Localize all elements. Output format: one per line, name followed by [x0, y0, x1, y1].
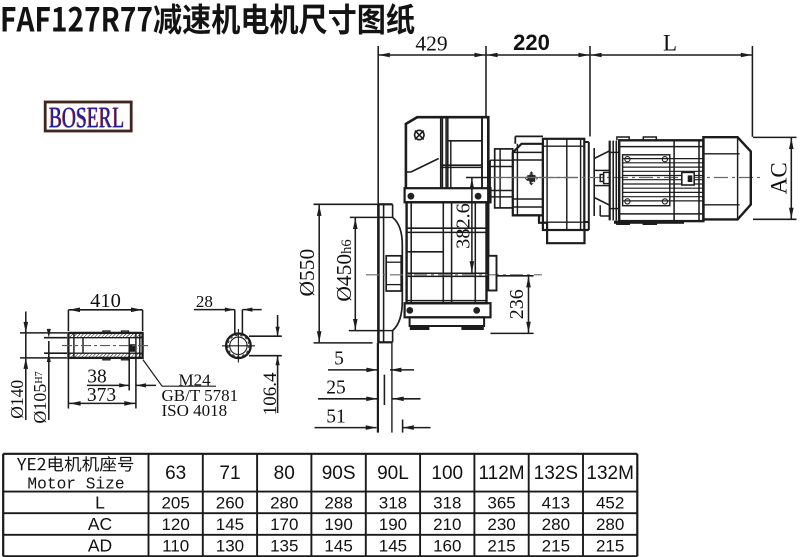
svg-text:110: 110	[162, 537, 189, 556]
svg-text:71: 71	[219, 463, 240, 484]
svg-text:AC: AC	[767, 162, 792, 194]
svg-text:90L: 90L	[377, 463, 409, 484]
svg-text:373: 373	[87, 385, 116, 406]
svg-text:410: 410	[90, 290, 121, 312]
svg-text:Ø550: Ø550	[295, 249, 319, 297]
svg-text:382.6: 382.6	[452, 203, 474, 249]
svg-text:25: 25	[326, 378, 346, 399]
svg-text:210: 210	[433, 515, 461, 534]
svg-text:318: 318	[433, 494, 461, 513]
svg-text:429: 429	[415, 31, 447, 55]
svg-text:236: 236	[506, 289, 528, 319]
svg-text:215: 215	[596, 537, 624, 556]
svg-text:ISO 4018: ISO 4018	[162, 401, 228, 420]
svg-text:132S: 132S	[534, 463, 578, 484]
svg-text:Ø105H7: Ø105H7	[30, 371, 50, 423]
svg-text:106.4: 106.4	[260, 372, 281, 415]
svg-text:280: 280	[542, 515, 570, 534]
svg-text:190: 190	[379, 515, 407, 534]
svg-text:452: 452	[596, 494, 624, 513]
svg-text:L: L	[663, 30, 677, 55]
svg-text:120: 120	[161, 515, 189, 534]
svg-text:318: 318	[379, 494, 407, 513]
svg-text:160: 160	[433, 537, 461, 556]
svg-text:Ø450h6: Ø450h6	[332, 239, 356, 301]
svg-text:288: 288	[324, 494, 352, 513]
svg-text:280: 280	[596, 515, 624, 534]
svg-text:365: 365	[487, 494, 515, 513]
svg-text:5: 5	[334, 349, 344, 370]
svg-text:170: 170	[270, 515, 298, 534]
svg-text:90S: 90S	[322, 463, 356, 484]
svg-text:80: 80	[274, 463, 295, 484]
svg-text:230: 230	[487, 515, 515, 534]
svg-text:L: L	[95, 493, 105, 513]
svg-text:260: 260	[216, 494, 244, 513]
svg-text:28: 28	[196, 292, 213, 311]
svg-text:51: 51	[326, 407, 346, 428]
svg-text:100: 100	[431, 463, 463, 484]
svg-text:130: 130	[216, 537, 244, 556]
svg-text:63: 63	[165, 463, 186, 484]
svg-text:220: 220	[513, 30, 550, 55]
svg-text:132M: 132M	[586, 463, 634, 484]
svg-text:215: 215	[542, 537, 570, 556]
svg-text:145: 145	[379, 537, 407, 556]
svg-text:190: 190	[324, 515, 352, 534]
svg-text:280: 280	[270, 494, 298, 513]
svg-text:135: 135	[270, 537, 298, 556]
svg-text:Motor Size: Motor Size	[27, 476, 124, 494]
svg-text:112M: 112M	[478, 463, 524, 484]
svg-text:Ø140: Ø140	[7, 380, 27, 419]
svg-text:205: 205	[161, 494, 189, 513]
svg-text:145: 145	[324, 537, 352, 556]
svg-text:AD: AD	[88, 536, 112, 556]
svg-text:AC: AC	[88, 514, 112, 534]
svg-text:215: 215	[487, 537, 515, 556]
svg-text:413: 413	[542, 494, 570, 513]
svg-text:145: 145	[216, 515, 244, 534]
svg-text:BOSERL: BOSERL	[49, 102, 124, 134]
